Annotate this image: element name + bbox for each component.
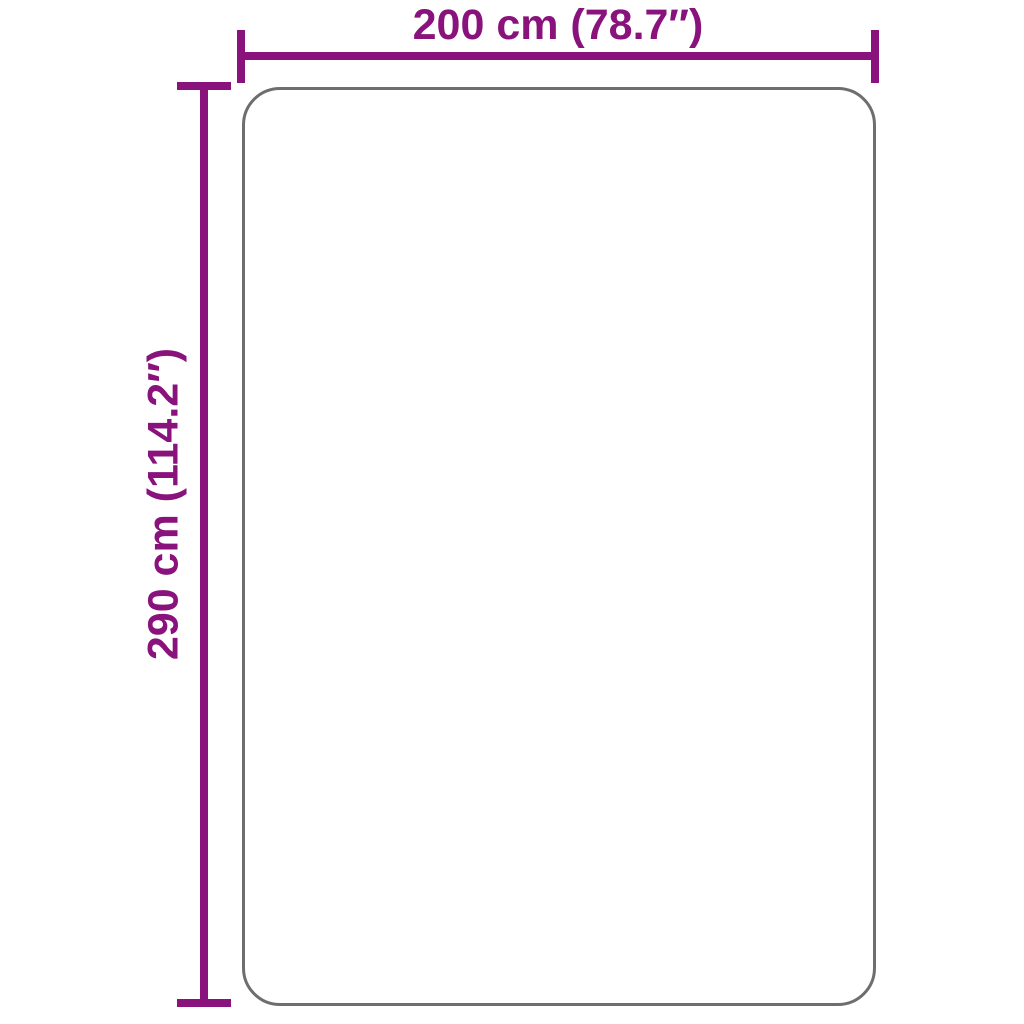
height-dimension-label: 290 cm (114.2″): [140, 348, 189, 660]
height-dimension-tick-bottom: [177, 999, 231, 1007]
height-dimension-line: [200, 85, 208, 1006]
width-dimension-line: [237, 52, 879, 60]
dimension-diagram: 200 cm (78.7″) 290 cm (114.2″): [0, 0, 1024, 1024]
rug-outline: [242, 87, 876, 1006]
height-dimension-tick-top: [177, 82, 231, 90]
width-dimension-label: 200 cm (78.7″): [237, 0, 879, 50]
